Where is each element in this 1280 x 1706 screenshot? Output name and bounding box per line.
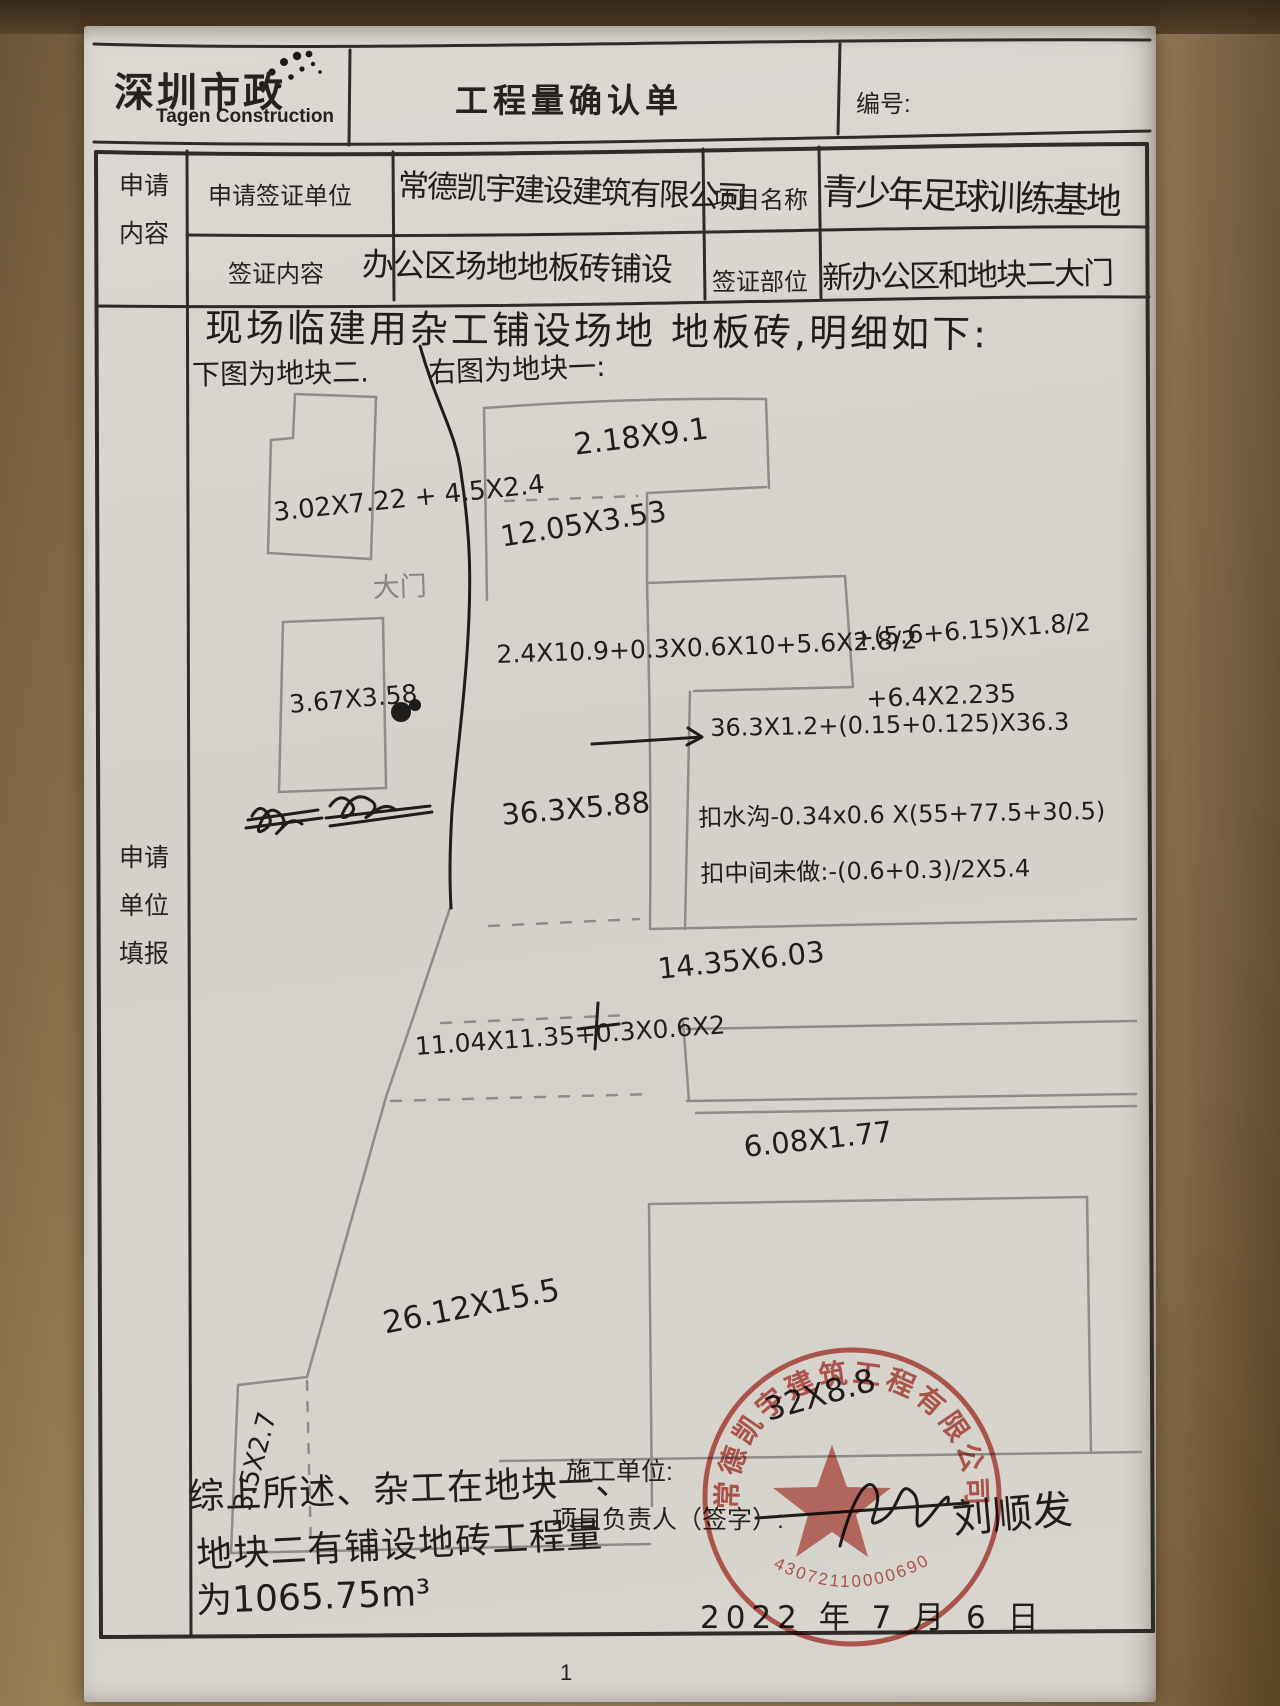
diagram-label: 36.3X5.88	[500, 785, 651, 832]
diagram-label: 14.35X6.03	[656, 934, 826, 985]
page-number: 1	[560, 1660, 572, 1686]
diagram-label: 26.12X15.5	[380, 1272, 563, 1341]
diagram-label: 6.08X1.77	[742, 1114, 894, 1163]
diagram-label: +(5.6+6.15)X1.8/2	[852, 607, 1091, 653]
manager-signature: 刘顺发	[950, 1477, 1075, 1545]
diagram-label: 11.04X11.35+0.3X0.6X2	[414, 1010, 726, 1061]
diagram-labels: 3.02X7.22 + 4.5X2.4大门3.67X3.582.18X9.112…	[0, 0, 1280, 1706]
diagram-label: 大门	[372, 564, 427, 605]
diagram-label: 12.05X3.53	[498, 494, 669, 554]
date-value: 2022 年 7 月 6 日	[700, 1592, 1045, 1637]
contractor-label: 施工单位:	[566, 1452, 673, 1488]
diagram-label: 2.18X9.1	[572, 412, 710, 463]
diagram-label: 3.67X3.58	[288, 679, 419, 719]
project-manager-label: 项目负责人（签字）:	[552, 1500, 784, 1536]
diagram-label: 扣水沟-0.34x0.6 X(55+77.5+30.5)	[698, 791, 1105, 833]
diagram-label: 36.3X1.2+(0.15+0.125)X36.3	[710, 708, 1069, 742]
diagram-label: 扣中间未做:-(0.6+0.3)/2X5.4	[700, 848, 1030, 889]
summary-line3: 为1065.75m³	[195, 1564, 431, 1624]
diagram-label: 32X8.8	[760, 1361, 880, 1429]
diagram-label: +6.4X2.235	[866, 679, 1016, 713]
photographed-form: 深圳市政 Tagen Construction 工程量确认单 编号: 申请 内容…	[0, 0, 1280, 1706]
